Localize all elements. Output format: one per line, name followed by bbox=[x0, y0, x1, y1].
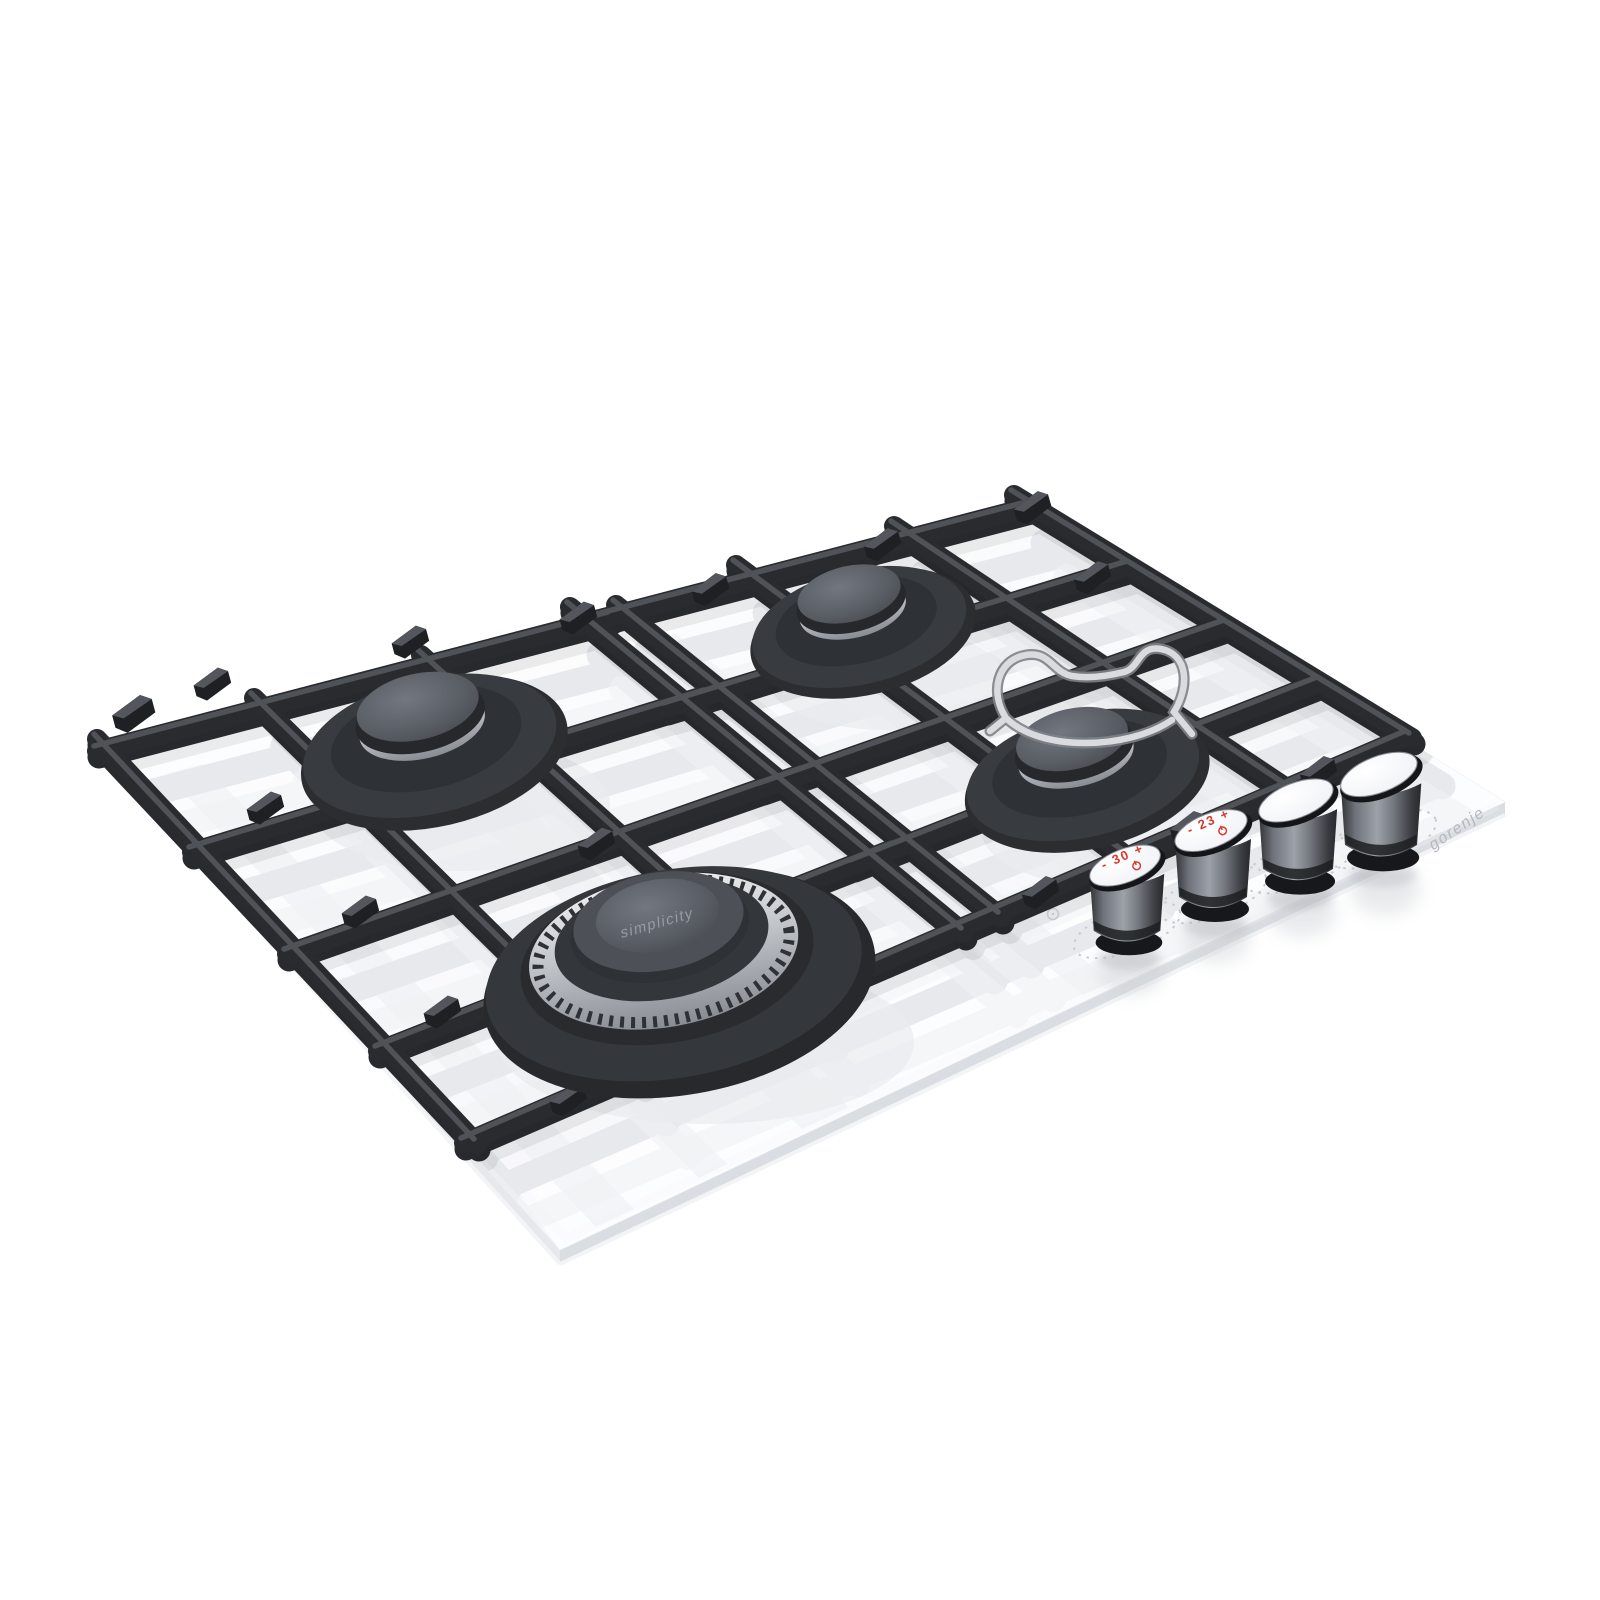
product-photo: simplicity - 30 + - 23 + gorenje bbox=[0, 0, 1600, 1600]
gas-hob-render: simplicity - 30 + - 23 + gorenje bbox=[0, 0, 1600, 1600]
